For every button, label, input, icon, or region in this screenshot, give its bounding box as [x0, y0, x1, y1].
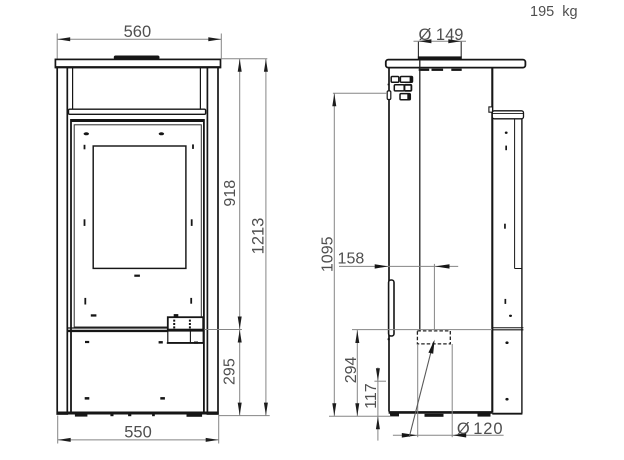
svg-text:195 kg: 195 kg: [530, 4, 578, 20]
svg-text:918: 918: [222, 180, 239, 207]
svg-text:550: 550: [124, 424, 152, 442]
svg-text:Ø: Ø: [457, 420, 470, 438]
svg-text:Ø 149: Ø 149: [419, 26, 464, 44]
svg-text:295: 295: [221, 358, 238, 385]
svg-text:120: 120: [473, 420, 503, 438]
svg-text:294: 294: [343, 356, 360, 383]
svg-text:1095: 1095: [320, 236, 337, 272]
svg-text:117: 117: [363, 383, 380, 409]
svg-text:560: 560: [124, 23, 152, 41]
svg-text:1213: 1213: [249, 218, 267, 255]
svg-text:158: 158: [338, 250, 365, 267]
